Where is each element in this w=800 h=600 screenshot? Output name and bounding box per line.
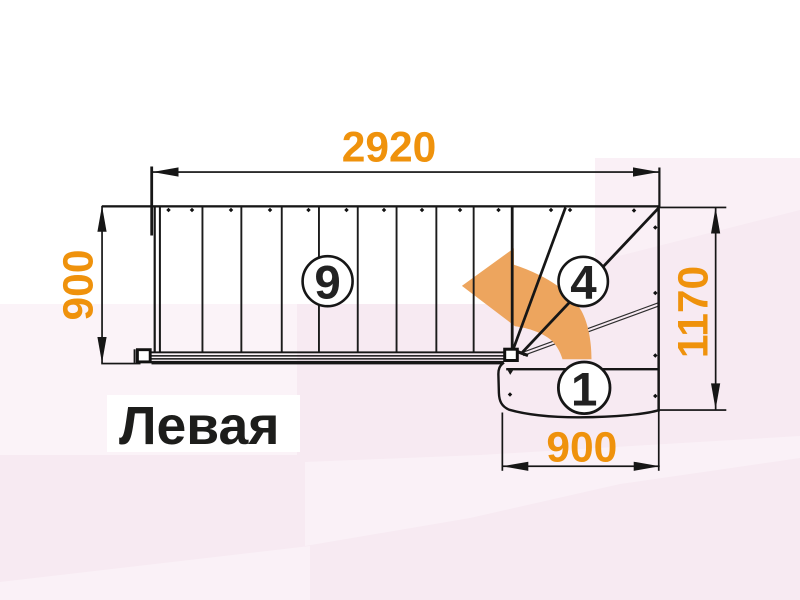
svg-text:900: 900 xyxy=(55,250,102,321)
svg-text:4: 4 xyxy=(570,257,597,310)
svg-text:1: 1 xyxy=(571,363,597,416)
svg-text:1170: 1170 xyxy=(670,266,717,358)
svg-text:Левая: Левая xyxy=(119,397,279,456)
svg-text:900: 900 xyxy=(546,425,617,472)
svg-text:9: 9 xyxy=(314,257,340,310)
svg-text:2920: 2920 xyxy=(342,125,437,172)
